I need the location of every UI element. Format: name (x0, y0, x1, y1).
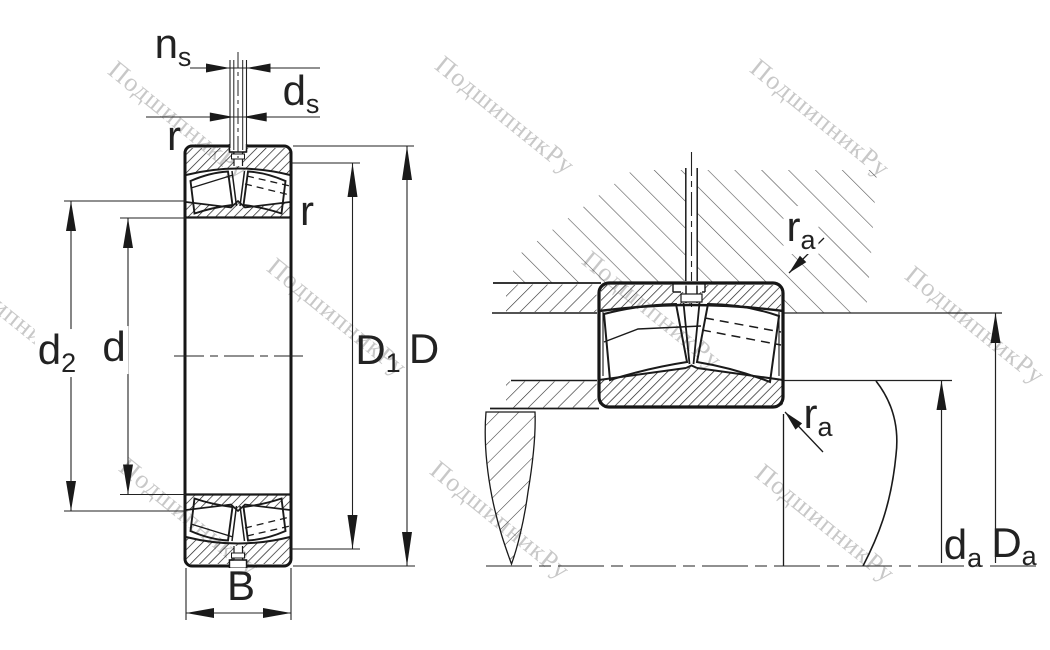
label-ra-bottom: ra (803, 393, 832, 441)
mounted-bearing-section (599, 281, 783, 407)
label-D1: D1 (355, 329, 400, 377)
end-cover-section (490, 285, 599, 409)
label-D: D (409, 328, 439, 376)
label-da: da (944, 524, 982, 572)
label-ra-top: ra (783, 206, 818, 254)
label-Da: Da (991, 522, 1036, 570)
label-d: d (99, 326, 128, 374)
bearing-dimension-drawing (0, 0, 1050, 650)
label-r-top: r (167, 115, 181, 163)
label-ns: ns (155, 23, 192, 71)
label-ds: ds (283, 70, 320, 118)
label-B: B (227, 565, 255, 613)
label-r-side: r (300, 190, 314, 238)
bearing-outline (174, 52, 303, 568)
label-d2: d2 (35, 329, 79, 377)
technical-drawing-canvas: ПодшипникРу ПодшипникРу ПодшипникРу Подш… (0, 0, 1050, 650)
